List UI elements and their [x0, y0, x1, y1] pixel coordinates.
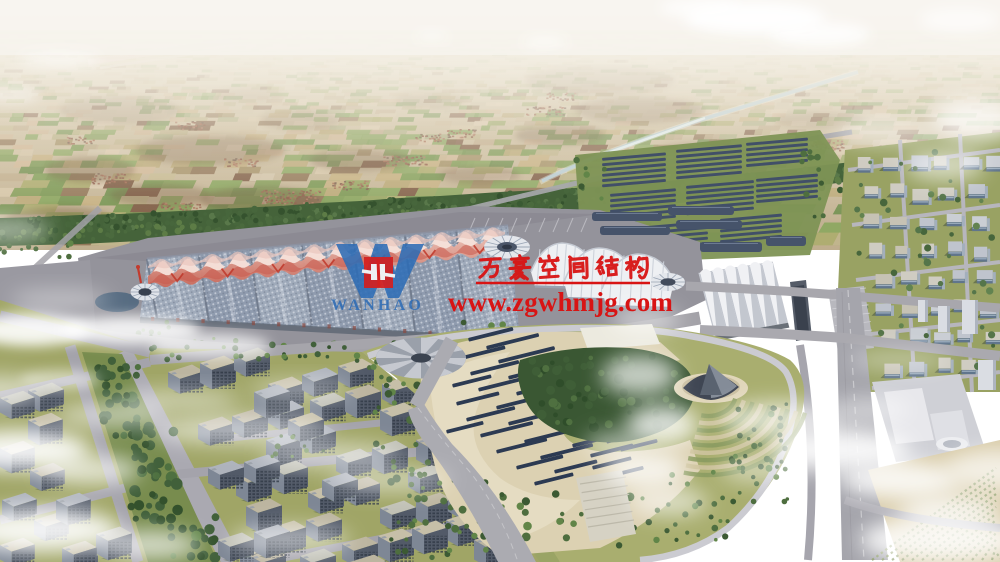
- svg-text:www.zgwhmjg.com: www.zgwhmjg.com: [448, 287, 673, 317]
- svg-text:WANHAO: WANHAO: [331, 297, 424, 314]
